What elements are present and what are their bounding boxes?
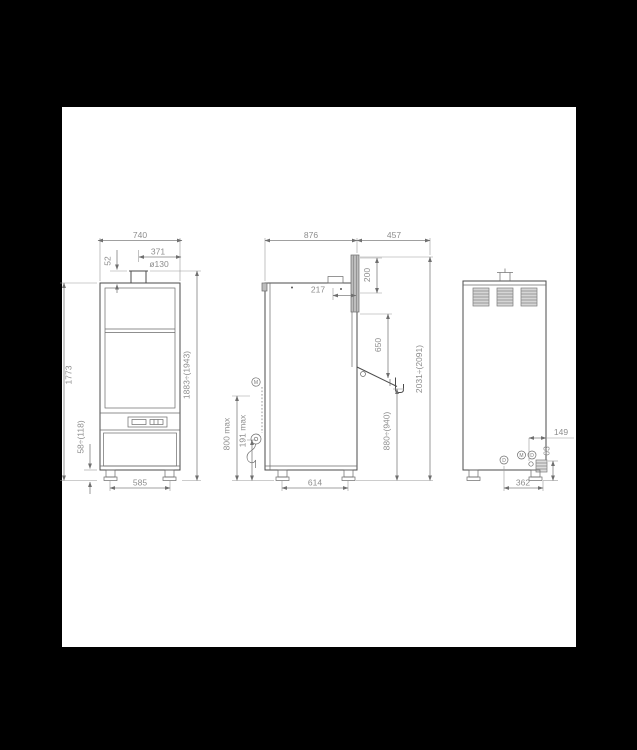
dim-side-drain-loop-max: 800 max bbox=[222, 417, 232, 450]
dim-side-hood-depth: 457 bbox=[387, 230, 401, 240]
dim-front-flue-offset: 371 bbox=[151, 247, 165, 257]
drawing-sheet bbox=[62, 107, 576, 647]
technical-drawing-page: 740 371 ø130 52 1773 58÷(118) 1883÷(1943… bbox=[0, 0, 637, 750]
dim-front-feet-width: 585 bbox=[133, 478, 147, 488]
dim-front-flue-gap: 52 bbox=[103, 256, 113, 266]
hood-guide bbox=[351, 255, 359, 312]
vent-grilles bbox=[473, 288, 537, 306]
side-connection-symbol: M bbox=[254, 380, 258, 386]
wall-tab bbox=[262, 283, 267, 291]
dim-side-drain-outlet-max: 191 max bbox=[238, 414, 248, 447]
dim-side-open-height: 2031÷(2091) bbox=[414, 345, 424, 393]
dim-side-hood-panel: 200 bbox=[362, 268, 372, 282]
dim-side-table-height: 880÷(940) bbox=[382, 411, 392, 450]
dim-side-hood-clearance: 650 bbox=[373, 338, 383, 352]
rear-connection-left: D bbox=[502, 458, 506, 464]
dim-rear-drain-height: 63 bbox=[542, 446, 552, 456]
dim-side-feet-depth: 614 bbox=[308, 478, 322, 488]
rear-connection-right: D bbox=[530, 453, 534, 459]
dim-rear-feet-width: 362 bbox=[516, 478, 530, 488]
dim-front-body-height: 1773 bbox=[64, 365, 74, 384]
dim-rear-drain-offset: 149 bbox=[554, 427, 568, 437]
dishwasher-dimension-drawing: 740 371 ø130 52 1773 58÷(118) 1883÷(1943… bbox=[0, 0, 637, 750]
rear-connection-mid: M bbox=[519, 453, 523, 459]
dim-front-flue-diameter: ø130 bbox=[149, 259, 169, 269]
dim-front-width-top: 740 bbox=[133, 230, 147, 240]
dim-front-feet-adjust: 58÷(118) bbox=[76, 420, 86, 454]
dim-side-handle-offset: 217 bbox=[311, 285, 325, 295]
dim-side-depth: 876 bbox=[304, 230, 318, 240]
dim-front-total-height: 1883÷(1943) bbox=[182, 351, 192, 399]
